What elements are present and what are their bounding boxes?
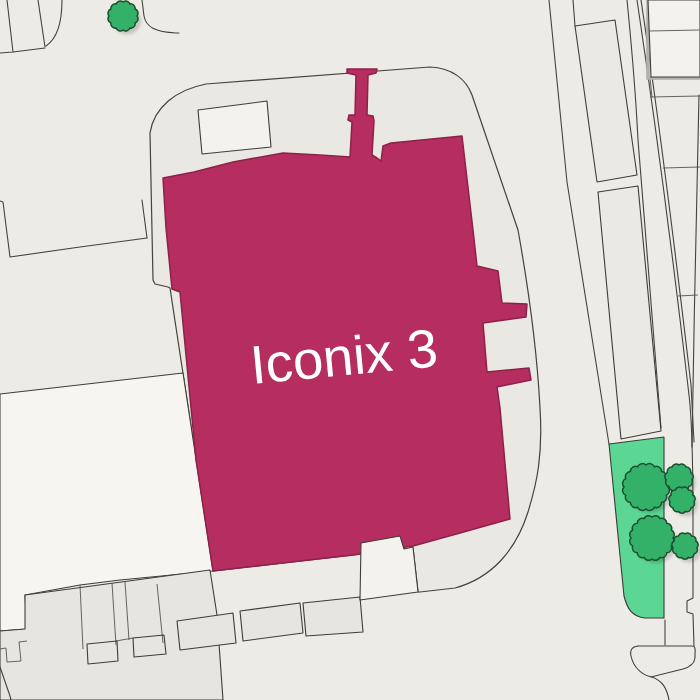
row-building[interactable]	[303, 597, 363, 636]
tree-icon[interactable]	[669, 487, 695, 513]
map-canvas[interactable]: Iconix 3	[0, 0, 700, 700]
tree-icon[interactable]	[108, 1, 138, 31]
topright-building[interactable]	[648, 0, 700, 78]
map-viewport[interactable]: Iconix 3	[0, 0, 700, 700]
building-small-white[interactable]	[198, 101, 271, 154]
building-topright[interactable]	[648, 0, 700, 77]
tree-icon[interactable]	[672, 533, 698, 559]
